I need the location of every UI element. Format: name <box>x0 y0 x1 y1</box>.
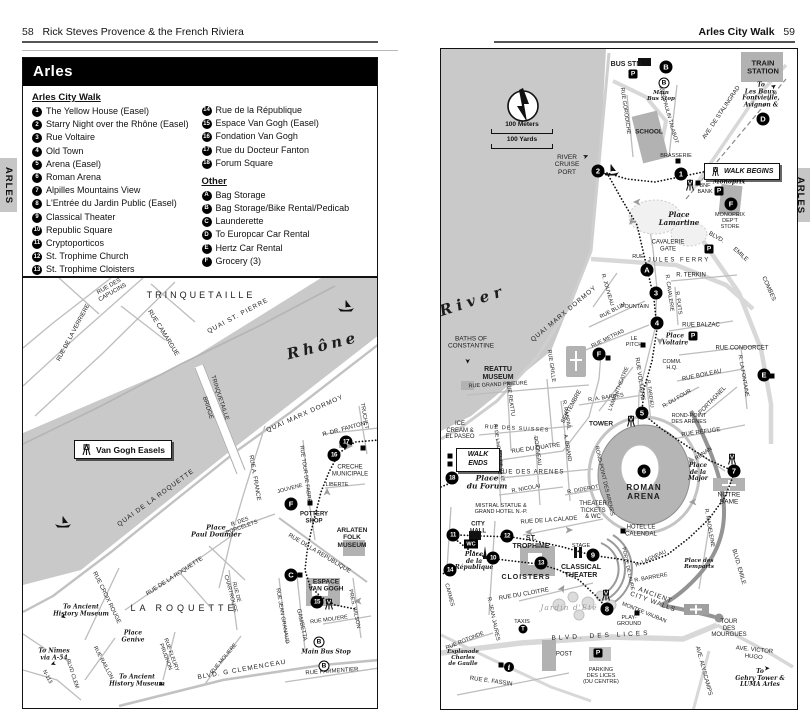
book-spread: { "page": { "left_header": {"num": "58",… <box>0 0 810 720</box>
easel-icon <box>727 453 738 466</box>
marker-D: D <box>757 113 770 126</box>
route-arrow-icon: ➤ <box>323 487 334 496</box>
left-page-header: 58 Rick Steves Provence & the French Riv… <box>22 26 244 38</box>
route-arrow-icon: ➤ <box>654 336 665 345</box>
legend-item: 14Rue de la République <box>202 105 368 116</box>
legend-item: 18Forum Square <box>202 158 368 169</box>
legend-item: 4Old Town <box>32 146 198 157</box>
marker-4: 4 <box>651 317 664 330</box>
legend-walk-list-2: 14Rue de la République15Espace Van Gogh … <box>202 105 368 169</box>
legend-item-label: Bag Storage/Bike Rental/Pedicab <box>216 203 350 214</box>
map-label: ST. TROPHIME <box>513 535 550 551</box>
legend-item: 17Rue du Docteur Fanton <box>202 145 368 156</box>
legend-item-marker: 14 <box>202 106 212 116</box>
map-label: Place Voltaire <box>662 333 688 346</box>
marker-9: 9 <box>587 549 600 562</box>
boat-icon <box>602 164 620 177</box>
marker-F: F <box>285 498 298 511</box>
map-label: MONOPRIX DEP'T STORE <box>715 212 745 230</box>
legend-item-marker: A <box>202 191 212 201</box>
legend-item: FGrocery (3) <box>202 256 368 267</box>
legend-item: 10Republic Square <box>32 225 198 236</box>
legend-item: CLaunderette <box>202 216 368 227</box>
right-page-title: Arles City Walk <box>698 26 774 38</box>
marker-A: A <box>641 264 654 277</box>
taxi-icon: T <box>519 625 528 634</box>
legend-item: 11Cryptoporticos <box>32 238 198 249</box>
map-label: Main Bus Stop <box>301 650 350 657</box>
map-label: TRAIN STATION <box>747 60 779 77</box>
info-icon: i <box>504 662 514 672</box>
legend-item-marker: E <box>202 244 212 254</box>
legend-item-label: The Yellow House (Easel) <box>46 106 149 117</box>
marker-16: 16 <box>328 449 341 462</box>
map-label: To Gehry Tower & LUMA Arles <box>735 669 784 689</box>
left-page-number: 58 <box>22 26 34 38</box>
legend-item: 6Roman Arena <box>32 172 198 183</box>
edge-tab-left: ARLES <box>0 158 17 212</box>
direction-arrow-icon: ➤ <box>464 358 471 364</box>
marker-F: F <box>593 348 606 361</box>
legend-item: DTo Europcar Car Rental <box>202 229 368 240</box>
easel-icon <box>685 179 696 192</box>
legend-columns: Arles City Walk 1The Yellow House (Easel… <box>23 86 377 277</box>
legend-item-label: St. Trophime Church <box>46 251 129 262</box>
map-label: CRECHE MUNICIPALE <box>332 464 368 477</box>
legend-item-marker: 10 <box>32 226 42 236</box>
legend-item-marker: F <box>202 257 212 267</box>
marker-10: 10 <box>487 552 500 565</box>
legend-item-label: Rue du Docteur Fanton <box>216 145 310 156</box>
marker-13: 13 <box>535 557 548 570</box>
building-dot <box>298 573 303 578</box>
legend-item-label: L'Entrée du Jardin Public (Easel) <box>46 198 177 209</box>
map-label: Esplanade Charles de Gaulle <box>447 649 479 667</box>
walk-ends-label: WALK ENDS <box>468 451 489 467</box>
map-label: ESPACE VAN GOGH <box>309 579 344 594</box>
legend-item-marker: 11 <box>32 239 42 249</box>
marker-B-outline: B <box>659 78 670 89</box>
boat-icon <box>54 516 72 529</box>
legend-item-label: St. Trophime Cloisters <box>46 264 135 275</box>
header-rule-right <box>494 41 795 43</box>
map-label: SCHOOL <box>635 128 663 135</box>
map-label: Place des Remparts <box>684 558 714 570</box>
legend-item: ABag Storage <box>202 190 368 201</box>
map-label: Place Genive <box>122 630 145 643</box>
easel-icon <box>601 589 612 602</box>
legend-item: 12St. Trophime Church <box>32 251 198 262</box>
marker-5: 5 <box>636 407 649 420</box>
map-label: LA ROQUETTE <box>130 603 237 613</box>
legend-item-label: Republic Square <box>46 225 113 236</box>
map-label: THEATER TICKETS & WC <box>579 501 607 521</box>
building-dot <box>361 446 366 451</box>
scale-meters-label: 100 Meters <box>487 121 557 128</box>
map-label: MISTRAL STATUE & GRAND HOTEL N.-P. <box>475 503 528 515</box>
map-label: COMM. H.Q. <box>663 359 682 371</box>
map-label: POTTERY SHOP <box>300 511 328 524</box>
scale-bar-meters <box>491 129 553 134</box>
map-label: Jardin d'Eté <box>540 604 597 612</box>
marker-15: 15 <box>311 596 324 609</box>
van-gogh-easels-label: Van Gogh Easels <box>96 445 165 455</box>
map-label: RUE <box>632 254 644 260</box>
walk-begins-callout: WALK BEGINS <box>704 163 780 180</box>
legend-item: EHertz Car Rental <box>202 243 368 254</box>
map-label: RUE BALZAC <box>682 323 720 330</box>
boat-icon <box>337 300 355 313</box>
map-legend: Arles Arles City Walk 1The Yellow House … <box>22 57 378 277</box>
marker-18: 18 <box>446 472 459 485</box>
legend-item-marker: B <box>202 204 212 214</box>
marker-B-outline: B <box>319 661 330 672</box>
marker-C: C <box>285 569 298 582</box>
marker-F: F <box>725 198 738 211</box>
legend-item-marker: 8 <box>32 199 42 209</box>
map-label: CLOISTERS <box>501 574 550 582</box>
walk-ends-callout: WALK ENDS <box>456 448 500 472</box>
marker-12: 12 <box>501 530 514 543</box>
legend-column-2: 14Rue de la République15Espace Van Gogh … <box>202 91 372 277</box>
legend-other-heading: Other <box>202 176 368 187</box>
building-dot <box>499 663 504 668</box>
map-arles-city-walk: BUS STN.TRAIN STATIONMain Bus StopTo Les… <box>440 48 798 710</box>
legend-item-marker: 9 <box>32 213 42 223</box>
route-arrow-icon: ➤ <box>632 196 641 207</box>
right-page-number: 59 <box>783 26 795 38</box>
marker-6: 6 <box>638 465 651 478</box>
legend-item-marker: 13 <box>32 265 42 275</box>
obelisk-icon <box>483 546 488 560</box>
map-label: TOWER <box>589 420 613 427</box>
legend-item: BBag Storage/Bike Rental/Pedicab <box>202 203 368 214</box>
route-arrow-icon: ➤ <box>688 496 697 507</box>
legend-item-label: Roman Arena <box>46 172 101 183</box>
route-arrow-icon: ➤ <box>344 442 353 453</box>
route-arrow-icon: ➤ <box>524 526 533 537</box>
edge-tab-left-label: ARLES <box>3 166 14 203</box>
marker-11: 11 <box>447 529 460 542</box>
van-gogh-easels-callout: Van Gogh Easels <box>74 440 172 459</box>
map-label: NOTRE DAME <box>718 492 741 507</box>
wc-icon: WC <box>464 540 478 549</box>
scale-yards-label: 100 Yards <box>487 136 557 143</box>
map-label: PLAY- GROUND <box>617 615 641 627</box>
direction-arrow-icon: ➤ <box>764 666 770 673</box>
map-label: CLASSICAL THEATER <box>561 564 601 580</box>
legend-item: 2Starry Night over the Rhône (Easel) <box>32 119 198 130</box>
building-dot <box>696 181 701 186</box>
marker-3: 3 <box>650 287 663 300</box>
legend-item: 16Fondation Van Gogh <box>202 131 368 142</box>
map-label: RIVER CRUISE PORT <box>555 154 580 176</box>
map-label: Monoprix <box>713 180 745 187</box>
legend-item-marker: 4 <box>32 147 42 157</box>
legend-item-marker: 6 <box>32 173 42 183</box>
easel-icon <box>626 415 637 428</box>
map-label: TRINQUETAILLE <box>147 290 256 300</box>
legend-item-label: Grocery (3) <box>216 256 262 267</box>
legend-item: 8L'Entrée du Jardin Public (Easel) <box>32 198 198 209</box>
legend-item-label: Cryptoporticos <box>46 238 104 249</box>
legend-item-marker: 5 <box>32 160 42 170</box>
legend-item-label: Hertz Car Rental <box>216 243 283 254</box>
map-label: ICE CREAM & EL PASEO <box>445 421 474 441</box>
map-label: BUS STN. <box>611 61 644 69</box>
route-arrow-icon: ➤ <box>686 456 695 467</box>
legend-item-label: Launderette <box>216 216 264 227</box>
map-label: RUE DES ARENES <box>498 470 565 477</box>
building-dot <box>635 611 640 616</box>
legend-item-marker: D <box>202 230 212 240</box>
legend-title: Arles <box>23 58 377 86</box>
map-label: STAGE <box>572 543 590 549</box>
route-arrow-icon: ➤ <box>353 595 362 606</box>
legend-item-label: Starry Night over the Rhône (Easel) <box>46 119 189 130</box>
legend-item: 7Alpilles Mountains View <box>32 185 198 196</box>
legend-item: 15Espace Van Gogh (Easel) <box>202 118 368 129</box>
legend-item-marker: 16 <box>202 132 212 142</box>
parking-icon: P <box>629 70 638 79</box>
building-dot <box>676 159 681 164</box>
route-arrow-icon: ➤ <box>564 526 573 537</box>
marker-B-outline: B <box>314 637 325 648</box>
easel-icon <box>81 443 92 456</box>
legend-item-marker: 7 <box>32 186 42 196</box>
right-page-header: Arles City Walk 59 <box>698 26 795 38</box>
legend-walk-heading: Arles City Walk <box>32 92 198 103</box>
map-label: R. TERKIN <box>676 273 706 280</box>
walk-begins-label: WALK BEGINS <box>724 168 773 175</box>
legend-item-marker: 18 <box>202 159 212 169</box>
legend-item-label: Espace Van Gogh (Easel) <box>216 118 319 129</box>
legend-item-label: Rue de la République <box>216 105 303 116</box>
map-label: CITY HALL <box>470 521 486 534</box>
building-dot <box>770 374 775 379</box>
legend-column-1: Arles City Walk 1The Yellow House (Easel… <box>32 91 202 277</box>
building-dot <box>448 454 453 459</box>
building-dot <box>308 501 313 506</box>
legend-item-marker: 3 <box>32 133 42 143</box>
map-label: Place Paul Doumier <box>191 525 241 540</box>
map-scale: 100 Meters 100 Yards <box>487 121 557 151</box>
marker-8: 8 <box>601 603 614 616</box>
map-label: HOTEL LE CALENDAL <box>625 524 657 537</box>
legend-item-label: Bag Storage <box>216 190 266 201</box>
header-rule-left-2 <box>22 50 398 51</box>
legend-item-label: To Europcar Car Rental <box>216 229 310 240</box>
legend-item-label: Fondation Van Gogh <box>216 131 298 142</box>
legend-item: 5Arena (Easel) <box>32 159 198 170</box>
legend-item-marker: 17 <box>202 146 212 156</box>
map-label: BATHS OF CONSTANTINE <box>448 336 494 351</box>
legend-item-label: Forum Square <box>216 158 274 169</box>
map-label: JULES FERRY <box>648 258 711 265</box>
legend-item: 3Rue Voltaire <box>32 132 198 143</box>
legend-item-marker: C <box>202 217 212 227</box>
map-arles-overview: TRINQUETAILLERUE DES CAPUCINSRUE DE LA V… <box>22 277 378 709</box>
easel-icon <box>324 598 335 611</box>
legend-item: 1The Yellow House (Easel) <box>32 106 198 117</box>
map-label: Place Lamartine <box>659 211 700 227</box>
left-page-title: Rick Steves Provence & the French Rivier… <box>42 26 243 38</box>
legend-walk-list-1: 1The Yellow House (Easel)2Starry Night o… <box>32 106 198 275</box>
legend-item-label: Rue Voltaire <box>46 132 95 143</box>
building-dot <box>448 462 453 467</box>
easel-icon <box>711 166 720 177</box>
map-label: TOUR DES MOURGUES <box>711 619 746 639</box>
scale-bar-yards <box>491 144 553 149</box>
parking-icon: P <box>705 245 714 254</box>
map-label: ARLATEN FOLK MUSEUM <box>337 527 368 549</box>
map-label: POST <box>556 652 572 659</box>
marker-B: B <box>660 61 673 74</box>
parking-icon: P <box>594 649 603 658</box>
legend-item-marker: 15 <box>202 119 212 129</box>
parking-icon: P <box>715 187 724 196</box>
building-dot <box>606 356 611 361</box>
map-label: CAVALERIE GATE <box>652 239 685 252</box>
map-label: PARKING DES LICES (DU CENTRE) <box>583 667 619 685</box>
legend-item-label: Old Town <box>46 146 83 157</box>
map-label: RUE CONDORCET <box>715 346 768 353</box>
legend-item-marker: 2 <box>32 120 42 130</box>
legend-item-label: Classical Theater <box>46 212 115 223</box>
legend-item-marker: 12 <box>32 252 42 262</box>
legend-item: 9Classical Theater <box>32 212 198 223</box>
header-rule-left <box>22 41 378 43</box>
legend-item-label: Alpilles Mountains View <box>46 185 140 196</box>
building-dot <box>621 529 626 534</box>
marker-7: 7 <box>728 465 741 478</box>
parking-icon: P <box>689 332 698 341</box>
map-label: ROMAN ARENA <box>626 484 661 502</box>
map-label: REATTU MUSEUM <box>482 366 513 382</box>
legend-item-marker: 1 <box>32 107 42 117</box>
legend-other-list: ABag StorageBBag Storage/Bike Rental/Ped… <box>202 190 368 267</box>
marker-14: 14 <box>444 564 457 577</box>
building-dot <box>641 343 646 348</box>
legend-item: 13St. Trophime Cloisters <box>32 264 198 275</box>
legend-item-label: Arena (Easel) <box>46 159 101 170</box>
